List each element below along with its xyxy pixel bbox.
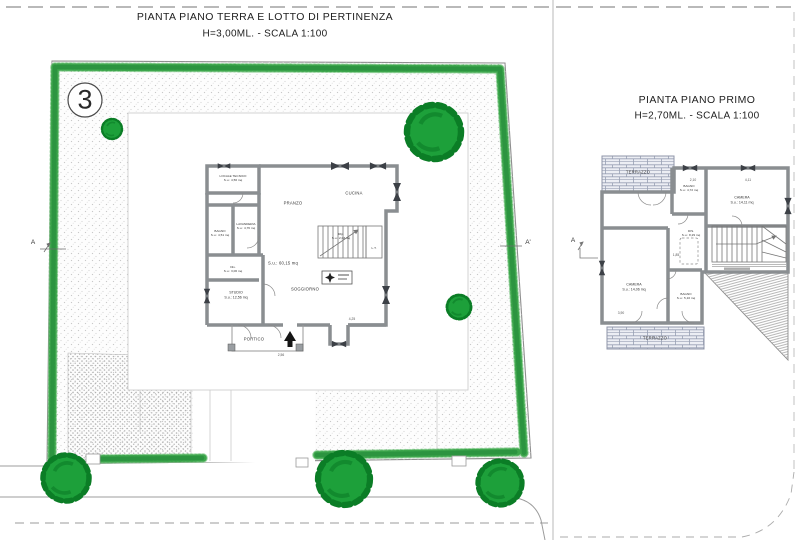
room-label-cucina: CUCINA [345,190,362,195]
first-floor-stairs [712,226,786,267]
section-marker-a-prime: A' [525,239,531,247]
dimension-label: 4,11 [745,178,751,182]
dimension-label: 3,90 [618,311,624,315]
left-sheet-title: PIANTA PIANO TERRA E LOTTO DI PERTINENZA [137,11,393,25]
walkway-area [193,388,315,462]
room-label-dis-pt: Dis. S.u.: 3,06 mq [224,265,242,273]
stairs-note-text [724,268,750,270]
room-label-studio: STUDIO S.u.: 12,56 mq [224,290,247,299]
room-label-bagno2: BAGNO S.u.: 5,10 mq [677,292,695,300]
tree-icon [478,461,522,505]
room-label-soggiorno: SOGGIORNO [291,286,319,291]
room-label-lt: L.T. [372,246,377,250]
dimension-label: 2,56 [278,353,284,357]
room-label-dis-p1: DIS. S.u.: 8,29 mq [682,229,700,237]
section-marker-a-first-floor: A [571,237,575,245]
room-label-bagno-pt: BAGNO S.u.: 4,51 mq [211,229,229,237]
room-label-rip: Rip. S.u.: 2,03 mq [332,232,350,240]
room-label-terrazzo-top: TERRAZZO [626,169,650,174]
room-label-portico: PORTICO [244,336,264,341]
roof-hatch [704,272,788,360]
left-sheet-subtitle: H=3,00ML. - SCALA 1:100 [202,28,327,41]
tree-icon [43,455,89,501]
right-sheet-title: PIANTA PIANO PRIMO [639,94,756,108]
room-label-camera-right: CAMERA S.u.: 14,11 mq [730,195,753,204]
lot-number: 3 [77,82,92,117]
tree-icon [102,119,122,139]
overall-area-label: S.u.: 60,15 mq [268,260,298,265]
room-label-bagno1: BAGNO S.u.: 4,72 mq [680,184,698,192]
closet-dashed-outline [680,238,698,264]
compass-legend [322,271,352,284]
first-floor-section-marker [578,242,598,258]
lot-plan [0,61,545,540]
room-label-terrazzo-bottom: TERRAZZO [643,335,667,340]
tree-icon [407,105,461,159]
site-plan-drawing [0,0,800,540]
tree-icon [318,453,370,505]
room-label-lavanderia: LAVANDERIA S.u.: 4,76 mq [236,222,255,230]
architectural-drawing-sheet: PIANTA PIANO TERRA E LOTTO DI PERTINENZA… [0,0,800,540]
tree-icon [447,295,471,319]
dimension-label: 2,10 [690,178,696,182]
right-sheet-subtitle: H=2,70ML. - SCALA 1:100 [634,110,759,123]
room-label-camera-left: CAMERA S.u.: 14,06 mq [622,282,645,291]
first-floor-door-swings [630,192,742,323]
dimension-label: 1,85 [673,253,679,257]
section-marker-a: A [31,239,35,247]
room-label-locale-tecnico: LOCALE TECNICO S.u.: 4,56 mq [220,174,247,182]
dimension-label: 4,25 [349,317,355,321]
room-label-pranzo: PRANZO [284,200,303,205]
